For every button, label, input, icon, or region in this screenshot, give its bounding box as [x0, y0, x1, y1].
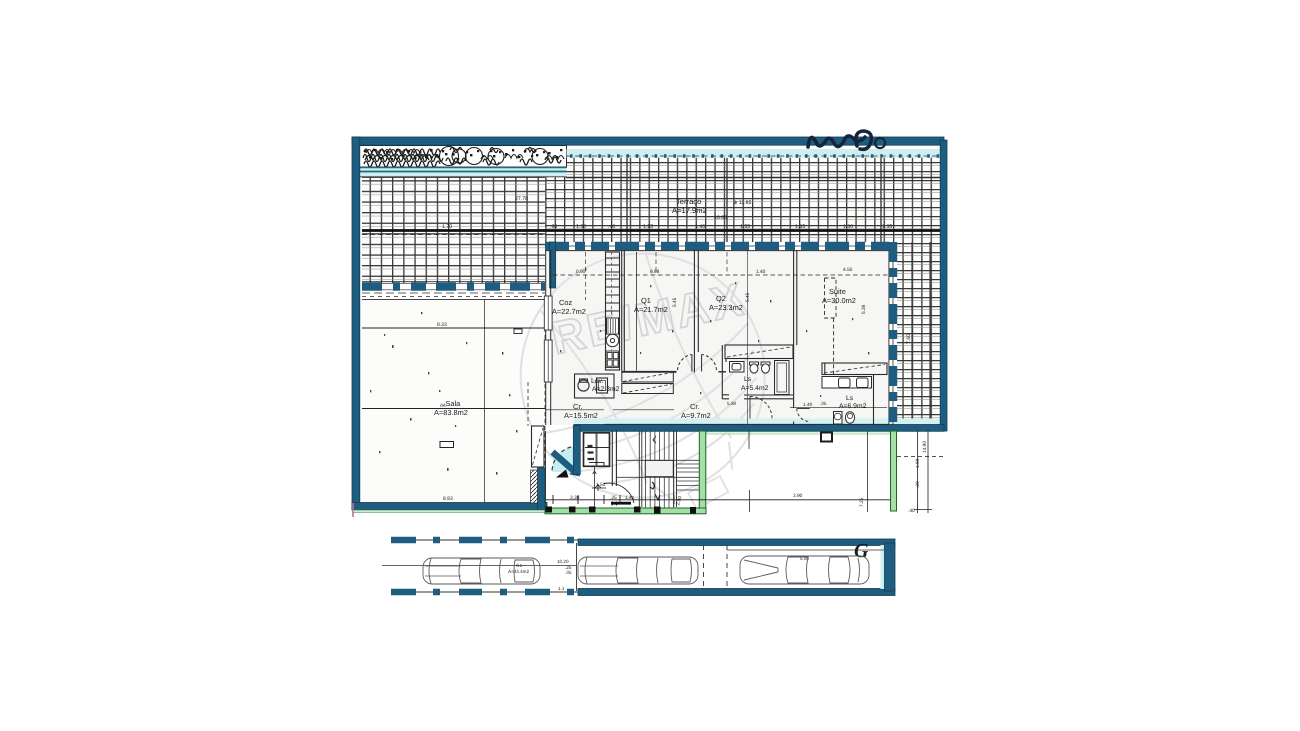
svg-text:A=17.9m2: A=17.9m2 — [672, 206, 707, 215]
svg-text:9.98: 9.98 — [650, 269, 660, 275]
svg-text:ₐₐSala: ₐₐSala — [440, 399, 461, 408]
svg-text:1.30: 1.30 — [576, 224, 586, 230]
svg-text:27.70: 27.70 — [515, 196, 528, 202]
svg-text:⊕ 11.85: ⊕ 11.85 — [733, 200, 751, 206]
svg-text:8.83: 8.83 — [443, 496, 453, 502]
svg-text:3.90: 3.90 — [793, 493, 803, 499]
svg-text:1.40: 1.40 — [756, 269, 766, 275]
svg-text:A=9.7m2: A=9.7m2 — [681, 411, 711, 420]
svg-text:7.25: 7.25 — [859, 497, 865, 507]
svg-text:14.90: 14.90 — [922, 441, 928, 453]
svg-text:5.45: 5.45 — [745, 292, 751, 302]
svg-text:Ls: Ls — [846, 395, 854, 402]
svg-text:1.40: 1.40 — [695, 224, 705, 230]
svg-text:.20: .20 — [915, 481, 921, 488]
svg-text:A=15.5m2: A=15.5m2 — [564, 411, 598, 420]
svg-text:5.45: 5.45 — [672, 297, 678, 307]
svg-text:7.60: 7.60 — [906, 334, 912, 344]
svg-text:Terraço: Terraço — [676, 197, 701, 206]
svg-text:0.90: 0.90 — [576, 269, 586, 275]
svg-text:1.49: 1.49 — [803, 402, 812, 407]
svg-text:8.33: 8.33 — [437, 322, 447, 328]
svg-text:A=22.7m2: A=22.7m2 — [552, 307, 586, 316]
svg-text:1.35: 1.35 — [795, 224, 805, 230]
svg-text:10.20: 10.20 — [557, 559, 569, 564]
svg-text:A=83.8m2: A=83.8m2 — [434, 408, 468, 417]
svg-text:5.39: 5.39 — [861, 304, 867, 314]
svg-text:.40: .40 — [608, 224, 615, 230]
svg-text:A=6.9m2: A=6.9m2 — [839, 403, 867, 410]
svg-text:Q1: Q1 — [641, 296, 651, 305]
svg-text:.40: .40 — [908, 508, 915, 514]
svg-text:A=23.3m2: A=23.3m2 — [709, 303, 743, 312]
svg-text:.25: .25 — [610, 495, 617, 501]
svg-text:A=30.0m2: A=30.0m2 — [822, 296, 856, 305]
svg-text:1.90: 1.90 — [915, 458, 921, 468]
svg-text:1.41: 1.41 — [625, 495, 635, 501]
svg-text:G1: G1 — [516, 563, 523, 568]
svg-text:A=33.4m2: A=33.4m2 — [508, 569, 530, 574]
svg-text:Suite: Suite — [829, 287, 846, 296]
svg-text:4.50: 4.50 — [843, 267, 853, 273]
svg-text:.60: .60 — [550, 224, 557, 230]
svg-text:1.55: 1.55 — [643, 224, 653, 230]
svg-text:Lov.: Lov. — [591, 378, 603, 385]
svg-text:A=21.7m2: A=21.7m2 — [634, 305, 668, 314]
svg-text:A=5.4m2: A=5.4m2 — [741, 385, 769, 392]
svg-text:Q2: Q2 — [716, 294, 726, 303]
svg-text:Ls: Ls — [744, 376, 752, 383]
svg-text:.35: .35 — [565, 570, 572, 575]
svg-text:3.30: 3.30 — [570, 495, 580, 501]
svg-text:1.50: 1.50 — [596, 482, 606, 488]
svg-text:5.38: 5.38 — [727, 401, 736, 406]
svg-text:Coz: Coz — [559, 298, 572, 307]
svg-text:.35: .35 — [820, 401, 827, 406]
svg-text:1.30: 1.30 — [843, 224, 853, 230]
svg-text:1.1: 1.1 — [558, 586, 565, 591]
svg-text:1.35: 1.35 — [882, 224, 892, 230]
svg-text:A=2.3m2: A=2.3m2 — [592, 386, 620, 393]
svg-text:1.70: 1.70 — [442, 224, 452, 230]
svg-text:Cr.: Cr. — [690, 402, 699, 411]
svg-text:16.60: 16.60 — [714, 215, 727, 221]
svg-text:1.55: 1.55 — [740, 224, 750, 230]
